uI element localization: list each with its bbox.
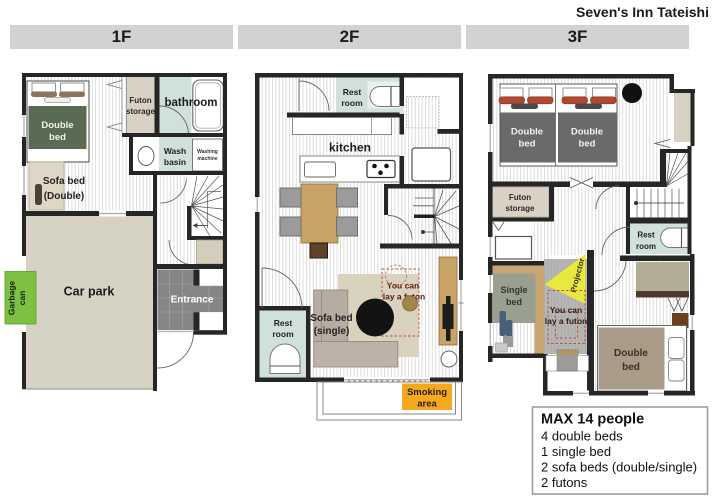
svg-text:room: room [272, 329, 294, 339]
svg-text:kitchen: kitchen [329, 141, 371, 155]
svg-text:Double: Double [511, 127, 543, 138]
svg-text:Garbage: Garbage [7, 280, 17, 315]
svg-text:Double: Double [41, 120, 73, 131]
svg-text:2 futons: 2 futons [541, 475, 588, 490]
svg-text:Rest: Rest [637, 231, 655, 240]
svg-text:room: room [636, 242, 656, 251]
svg-text:Car park: Car park [64, 285, 115, 299]
svg-text:MAX 14 people: MAX 14 people [541, 412, 644, 428]
svg-text:You can: You can [550, 305, 582, 315]
svg-text:Rest: Rest [274, 318, 293, 328]
svg-text:Sofa bed: Sofa bed [43, 176, 85, 187]
svg-text:storage: storage [506, 204, 535, 213]
svg-text:Double: Double [614, 348, 648, 359]
svg-text:Double: Double [571, 127, 603, 138]
svg-text:Sofa bed: Sofa bed [310, 313, 352, 324]
svg-text:bathroom: bathroom [164, 97, 217, 109]
svg-text:Rest: Rest [343, 87, 362, 97]
svg-text:bed: bed [622, 362, 640, 373]
svg-text:machine: machine [197, 156, 218, 162]
svg-text:Wash: Wash [164, 146, 186, 156]
svg-text:Futon: Futon [509, 193, 531, 202]
svg-text:Washing: Washing [197, 149, 218, 155]
svg-text:bed: bed [579, 139, 596, 150]
svg-text:Seven's Inn Tateishi: Seven's Inn Tateishi [576, 4, 709, 20]
svg-text:4 double beds: 4 double beds [541, 429, 623, 444]
svg-text:Entrance: Entrance [171, 295, 214, 306]
svg-text:1F: 1F [112, 27, 132, 46]
svg-text:(single): (single) [314, 326, 350, 337]
svg-text:storage: storage [126, 107, 155, 116]
svg-text:Smoking: Smoking [407, 387, 447, 398]
svg-text:Futon: Futon [129, 96, 151, 105]
svg-text:bed: bed [49, 132, 66, 143]
svg-text:bed: bed [519, 139, 536, 150]
svg-text:Single: Single [500, 285, 527, 295]
svg-text:basin: basin [164, 157, 186, 167]
svg-text:(Double): (Double) [44, 191, 85, 202]
svg-text:area: area [417, 399, 437, 410]
svg-text:1 single bed: 1 single bed [541, 444, 611, 459]
svg-text:3F: 3F [568, 27, 588, 46]
svg-text:You can: You can [387, 281, 419, 291]
svg-text:lay a futon: lay a futon [545, 316, 588, 326]
svg-text:2F: 2F [340, 27, 360, 46]
svg-text:room: room [341, 98, 363, 108]
svg-text:can: can [17, 291, 27, 306]
svg-text:bed: bed [506, 297, 522, 307]
svg-text:2 sofa beds (double/single): 2 sofa beds (double/single) [541, 460, 697, 475]
